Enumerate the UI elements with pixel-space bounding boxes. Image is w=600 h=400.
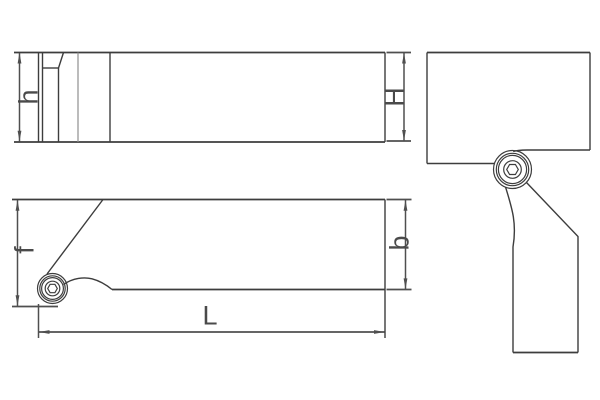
dim-label-f: f xyxy=(12,246,39,254)
arrow-up-icon xyxy=(404,200,408,211)
arrow-up-icon xyxy=(16,200,20,211)
arrow-down-icon xyxy=(18,131,22,142)
uncut-surface-line xyxy=(513,150,590,152)
technical-drawing-canvas: h H f b L xyxy=(0,0,600,400)
torx-socket-icon xyxy=(507,165,519,175)
shank-left-edge xyxy=(506,187,515,353)
head-leading-diagonal xyxy=(47,200,103,275)
arrow-right-icon xyxy=(374,330,385,334)
insert-outer-circle xyxy=(494,151,532,189)
side-view xyxy=(14,53,385,143)
arrow-down-icon xyxy=(402,130,406,141)
arrow-down-icon xyxy=(404,278,408,289)
top-view xyxy=(12,200,385,339)
shank-right-edge xyxy=(527,183,579,353)
round-insert-top-view xyxy=(38,274,68,304)
torx-socket-icon xyxy=(48,284,58,292)
dim-label-h: h xyxy=(16,89,43,104)
insert-middle-circle xyxy=(40,276,65,301)
drawing-svg xyxy=(0,0,600,400)
dim-label-L: L xyxy=(202,303,217,330)
arrow-up-icon xyxy=(18,53,22,64)
arrow-down-icon xyxy=(16,295,20,306)
arrow-up-icon xyxy=(402,53,406,64)
insert-inner-circle xyxy=(498,155,526,183)
application-view xyxy=(427,53,590,353)
insert-middle-circle xyxy=(496,153,528,185)
clamp-nose-diagonal xyxy=(59,53,64,69)
dim-label-H: H xyxy=(382,87,409,107)
dim-label-b: b xyxy=(387,235,414,250)
arrow-left-icon xyxy=(39,330,50,334)
round-insert-application-view xyxy=(494,151,532,189)
head-trailing-curve xyxy=(64,278,113,290)
dimension-lines xyxy=(12,53,412,339)
